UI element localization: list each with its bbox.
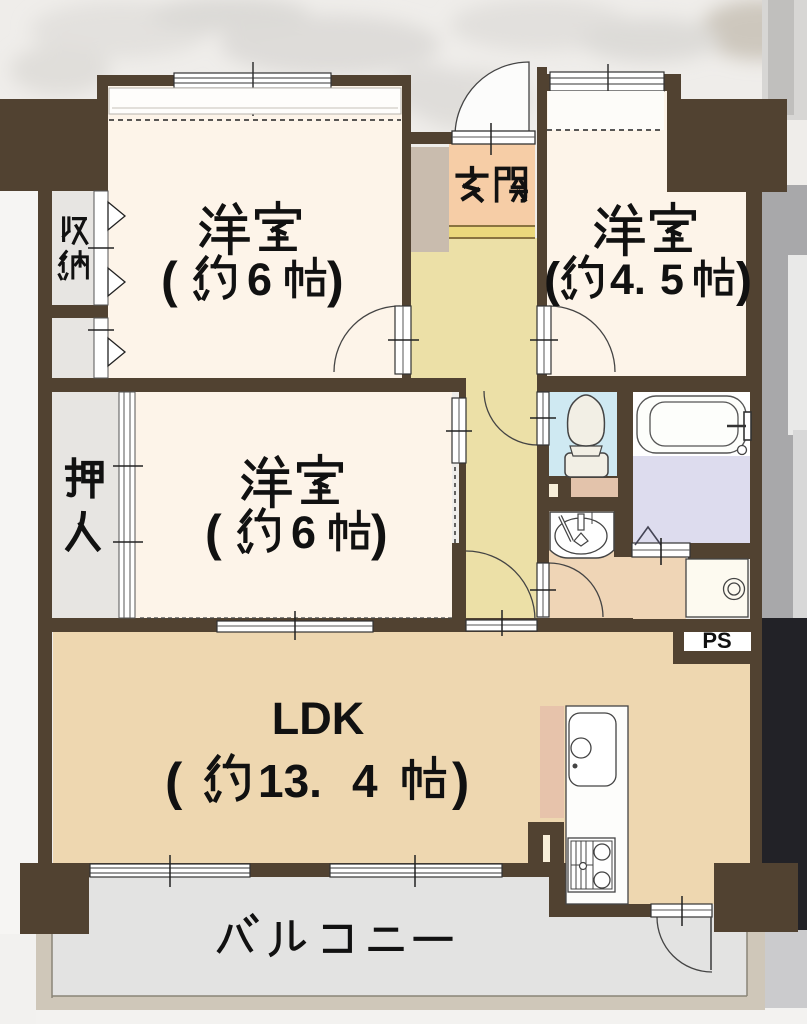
- svg-text:5: 5: [660, 256, 684, 304]
- svg-text:LDK: LDK: [272, 693, 365, 744]
- svg-text:PS: PS: [702, 628, 731, 653]
- svg-text:): ): [327, 252, 344, 308]
- svg-text:(: (: [205, 505, 222, 561]
- svg-text:(: (: [544, 254, 560, 307]
- svg-text:4.: 4.: [610, 256, 646, 304]
- svg-text:13.: 13.: [258, 755, 322, 807]
- svg-text:): ): [371, 505, 388, 561]
- svg-text:6: 6: [291, 507, 316, 558]
- svg-text:(: (: [161, 252, 178, 308]
- svg-text:6: 6: [247, 254, 272, 305]
- svg-text:): ): [452, 753, 469, 811]
- svg-text:4: 4: [352, 755, 378, 807]
- svg-text:): ): [736, 254, 752, 307]
- svg-text:(: (: [165, 753, 183, 811]
